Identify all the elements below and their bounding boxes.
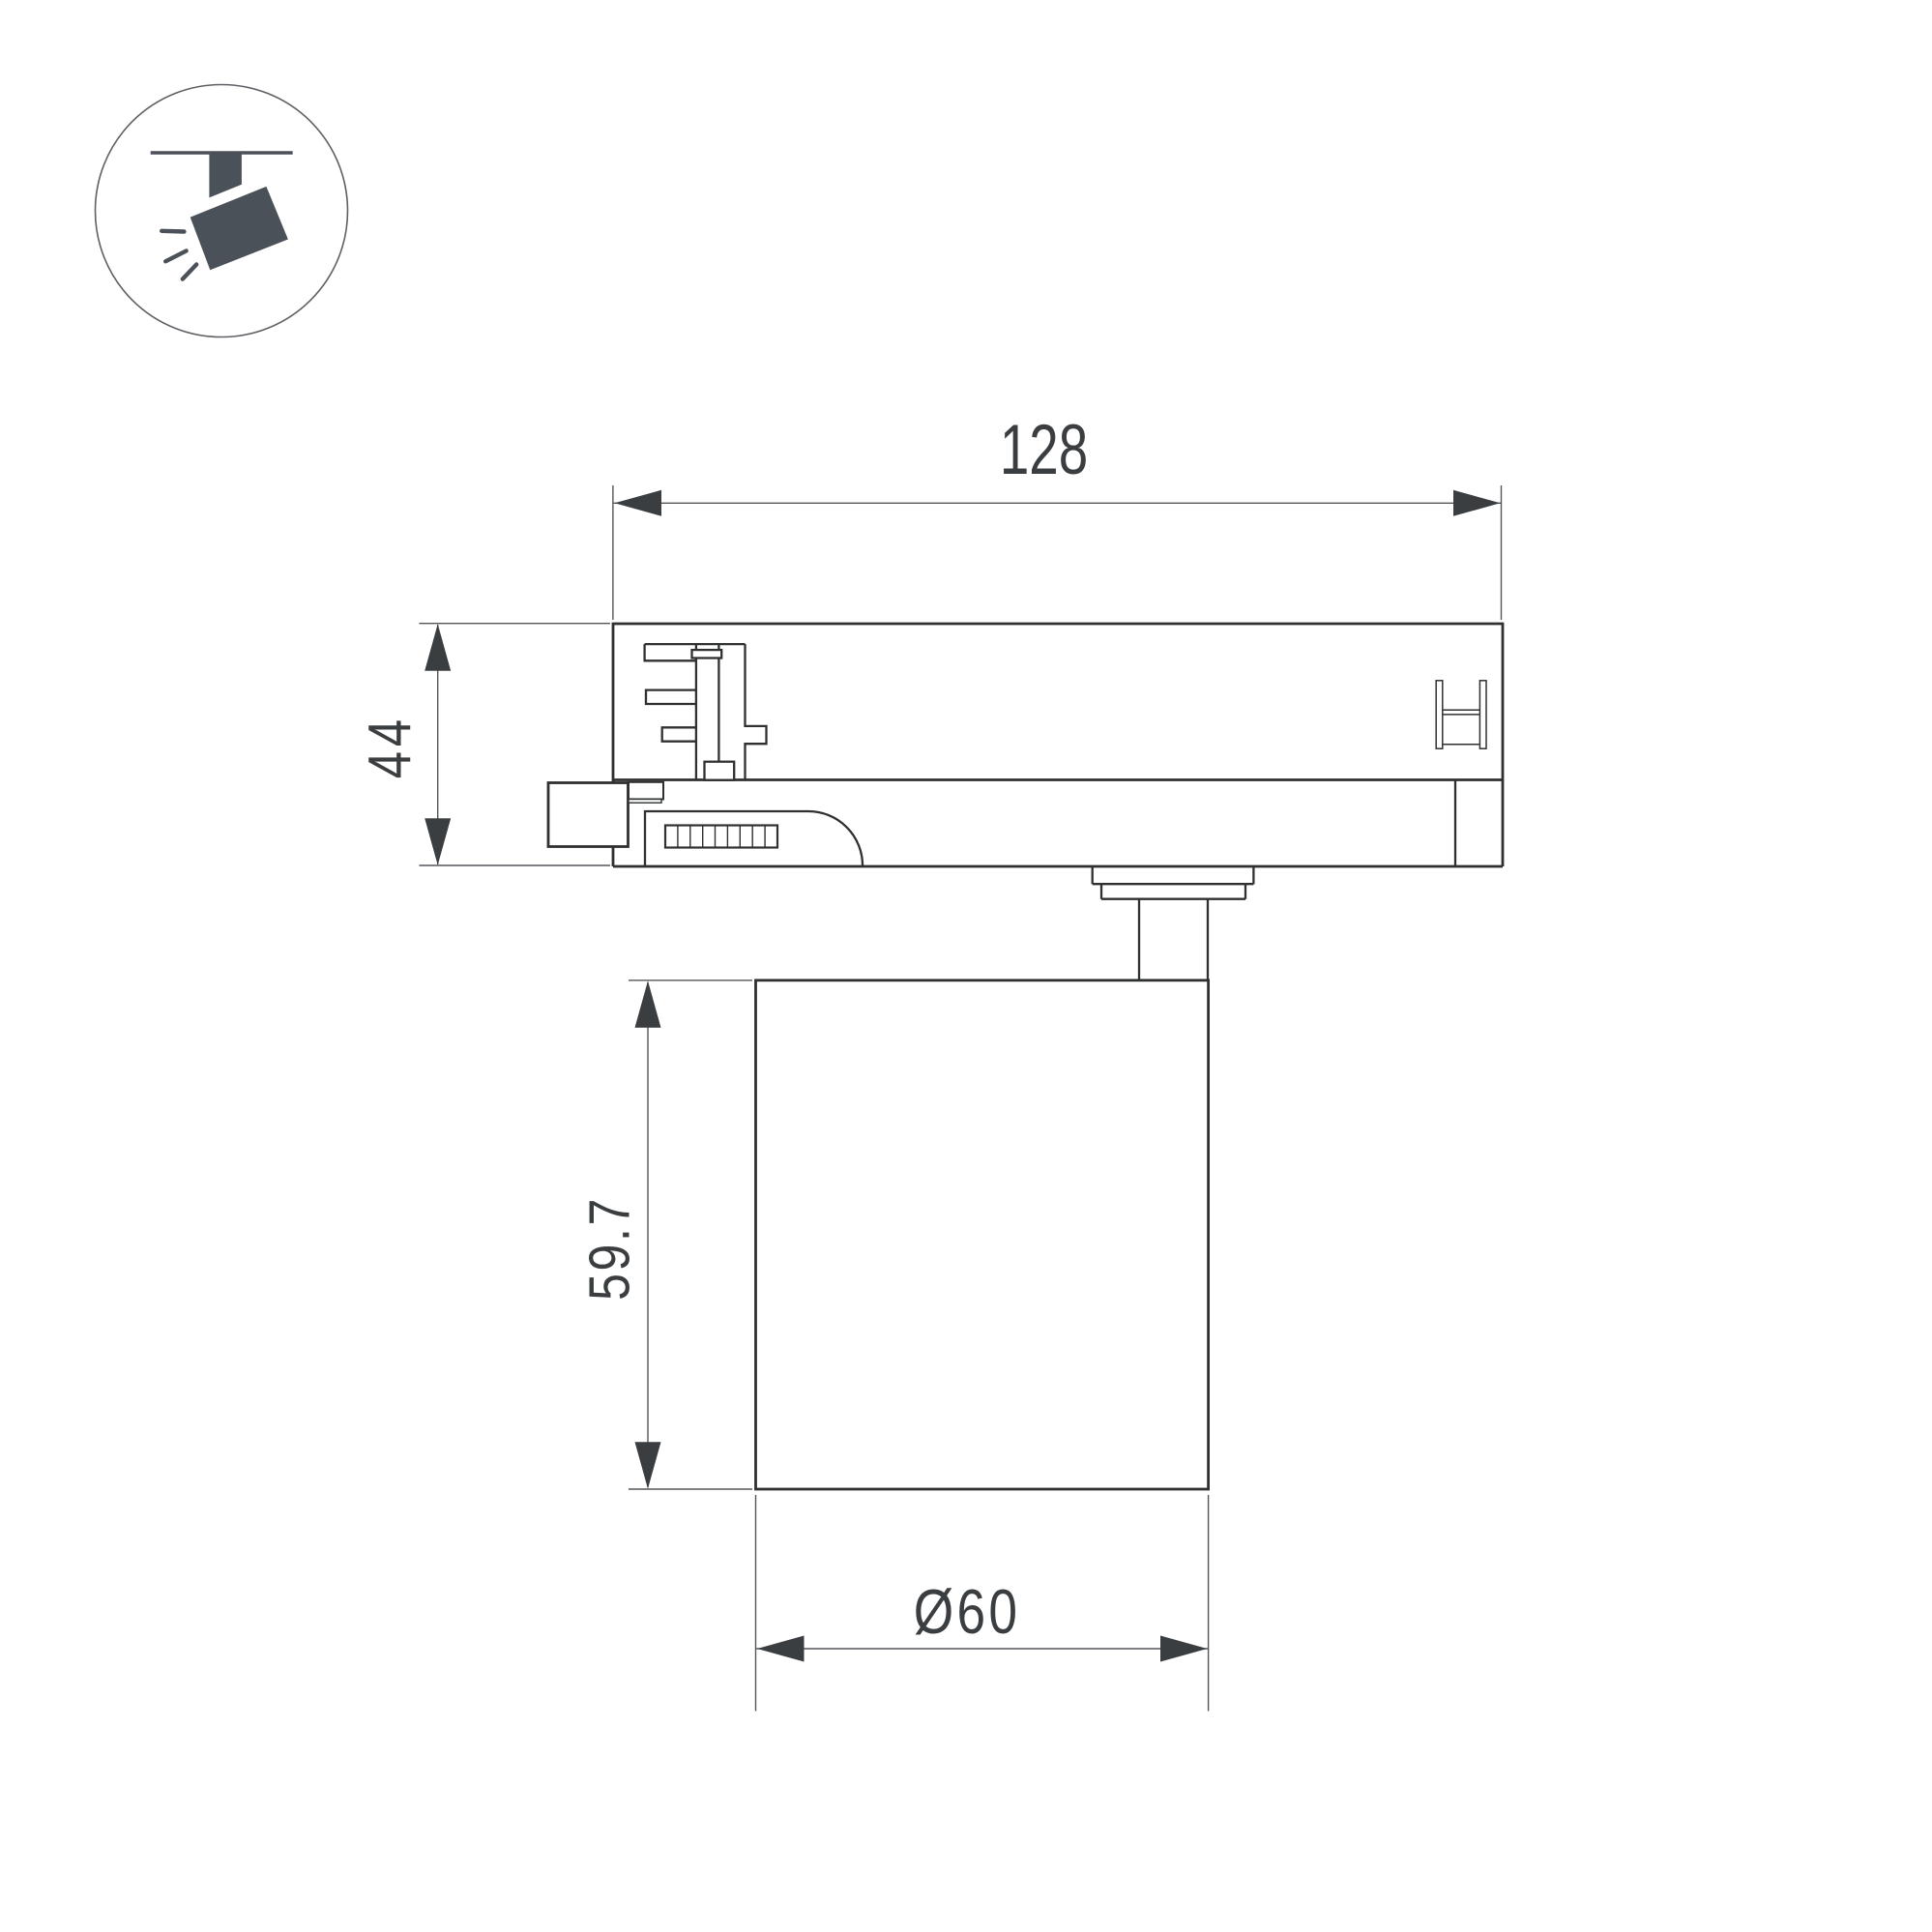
svg-text:Ø60: Ø60 [914, 1576, 1021, 1647]
svg-text:128: 128 [1000, 410, 1088, 488]
svg-text:59.7: 59.7 [577, 1196, 642, 1301]
svg-text:44: 44 [357, 715, 424, 778]
